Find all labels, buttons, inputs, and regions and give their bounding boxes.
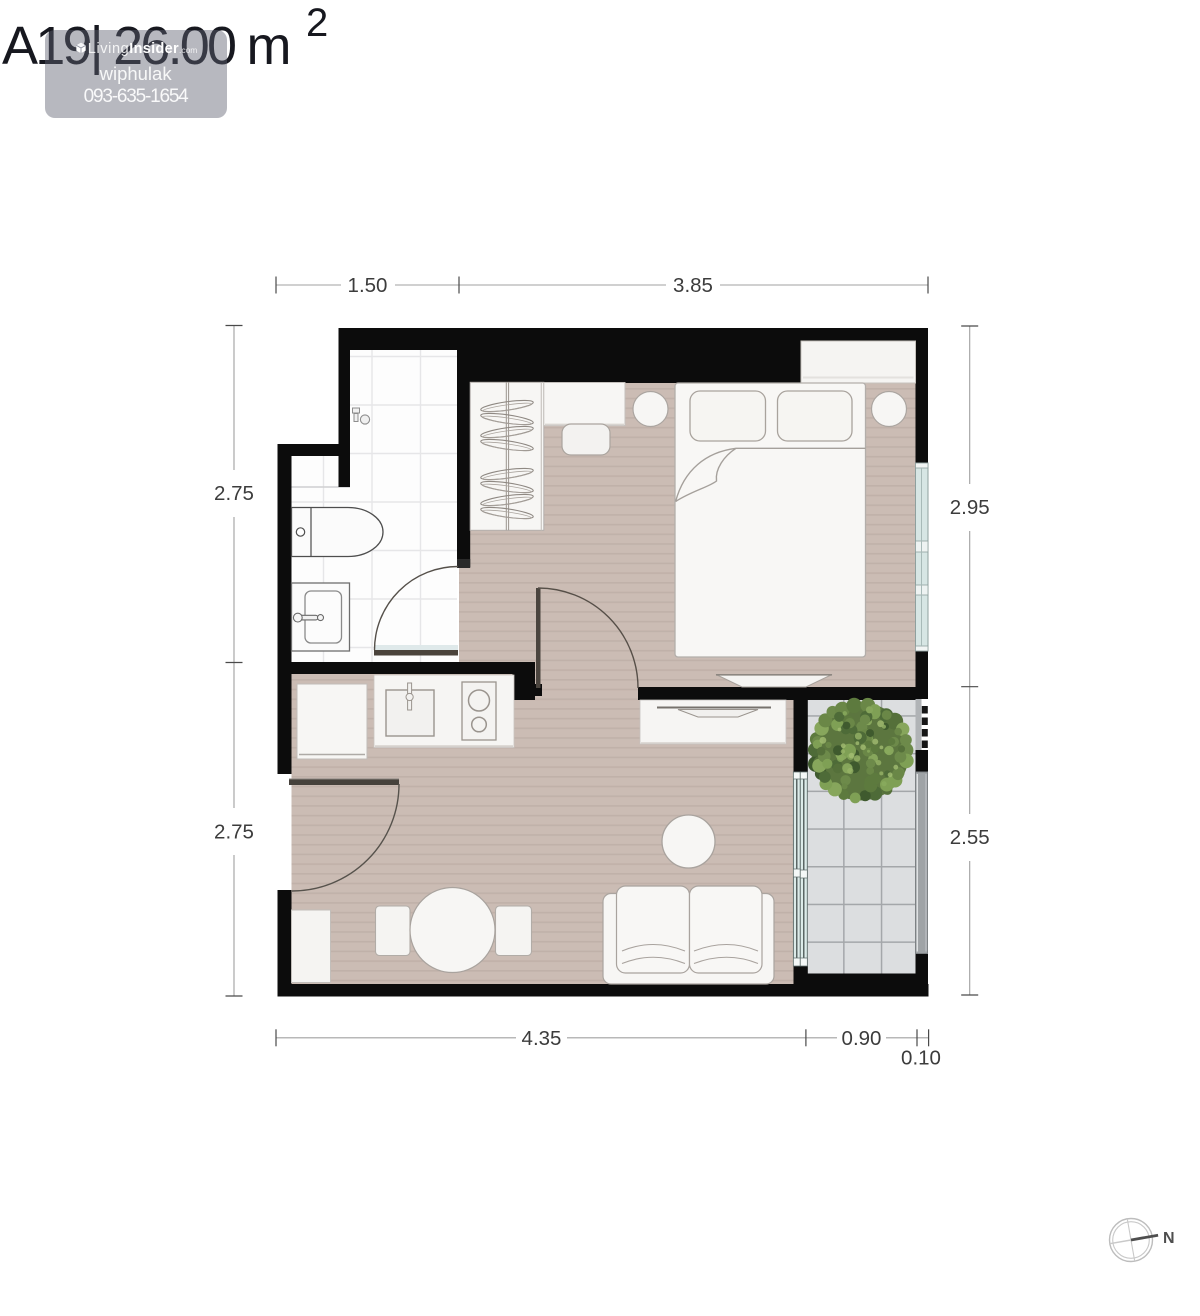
svg-text:2.75: 2.75 bbox=[214, 482, 254, 505]
svg-text:N: N bbox=[1163, 1230, 1175, 1247]
svg-text:3.85: 3.85 bbox=[673, 274, 713, 297]
svg-text:1.50: 1.50 bbox=[348, 274, 388, 297]
svg-text:2.55: 2.55 bbox=[950, 826, 990, 849]
svg-text:0.90: 0.90 bbox=[842, 1027, 882, 1050]
svg-text:2.75: 2.75 bbox=[214, 821, 254, 844]
svg-text:2.95: 2.95 bbox=[950, 496, 990, 519]
svg-text:4.35: 4.35 bbox=[522, 1027, 562, 1050]
svg-text:0.10: 0.10 bbox=[901, 1047, 941, 1070]
